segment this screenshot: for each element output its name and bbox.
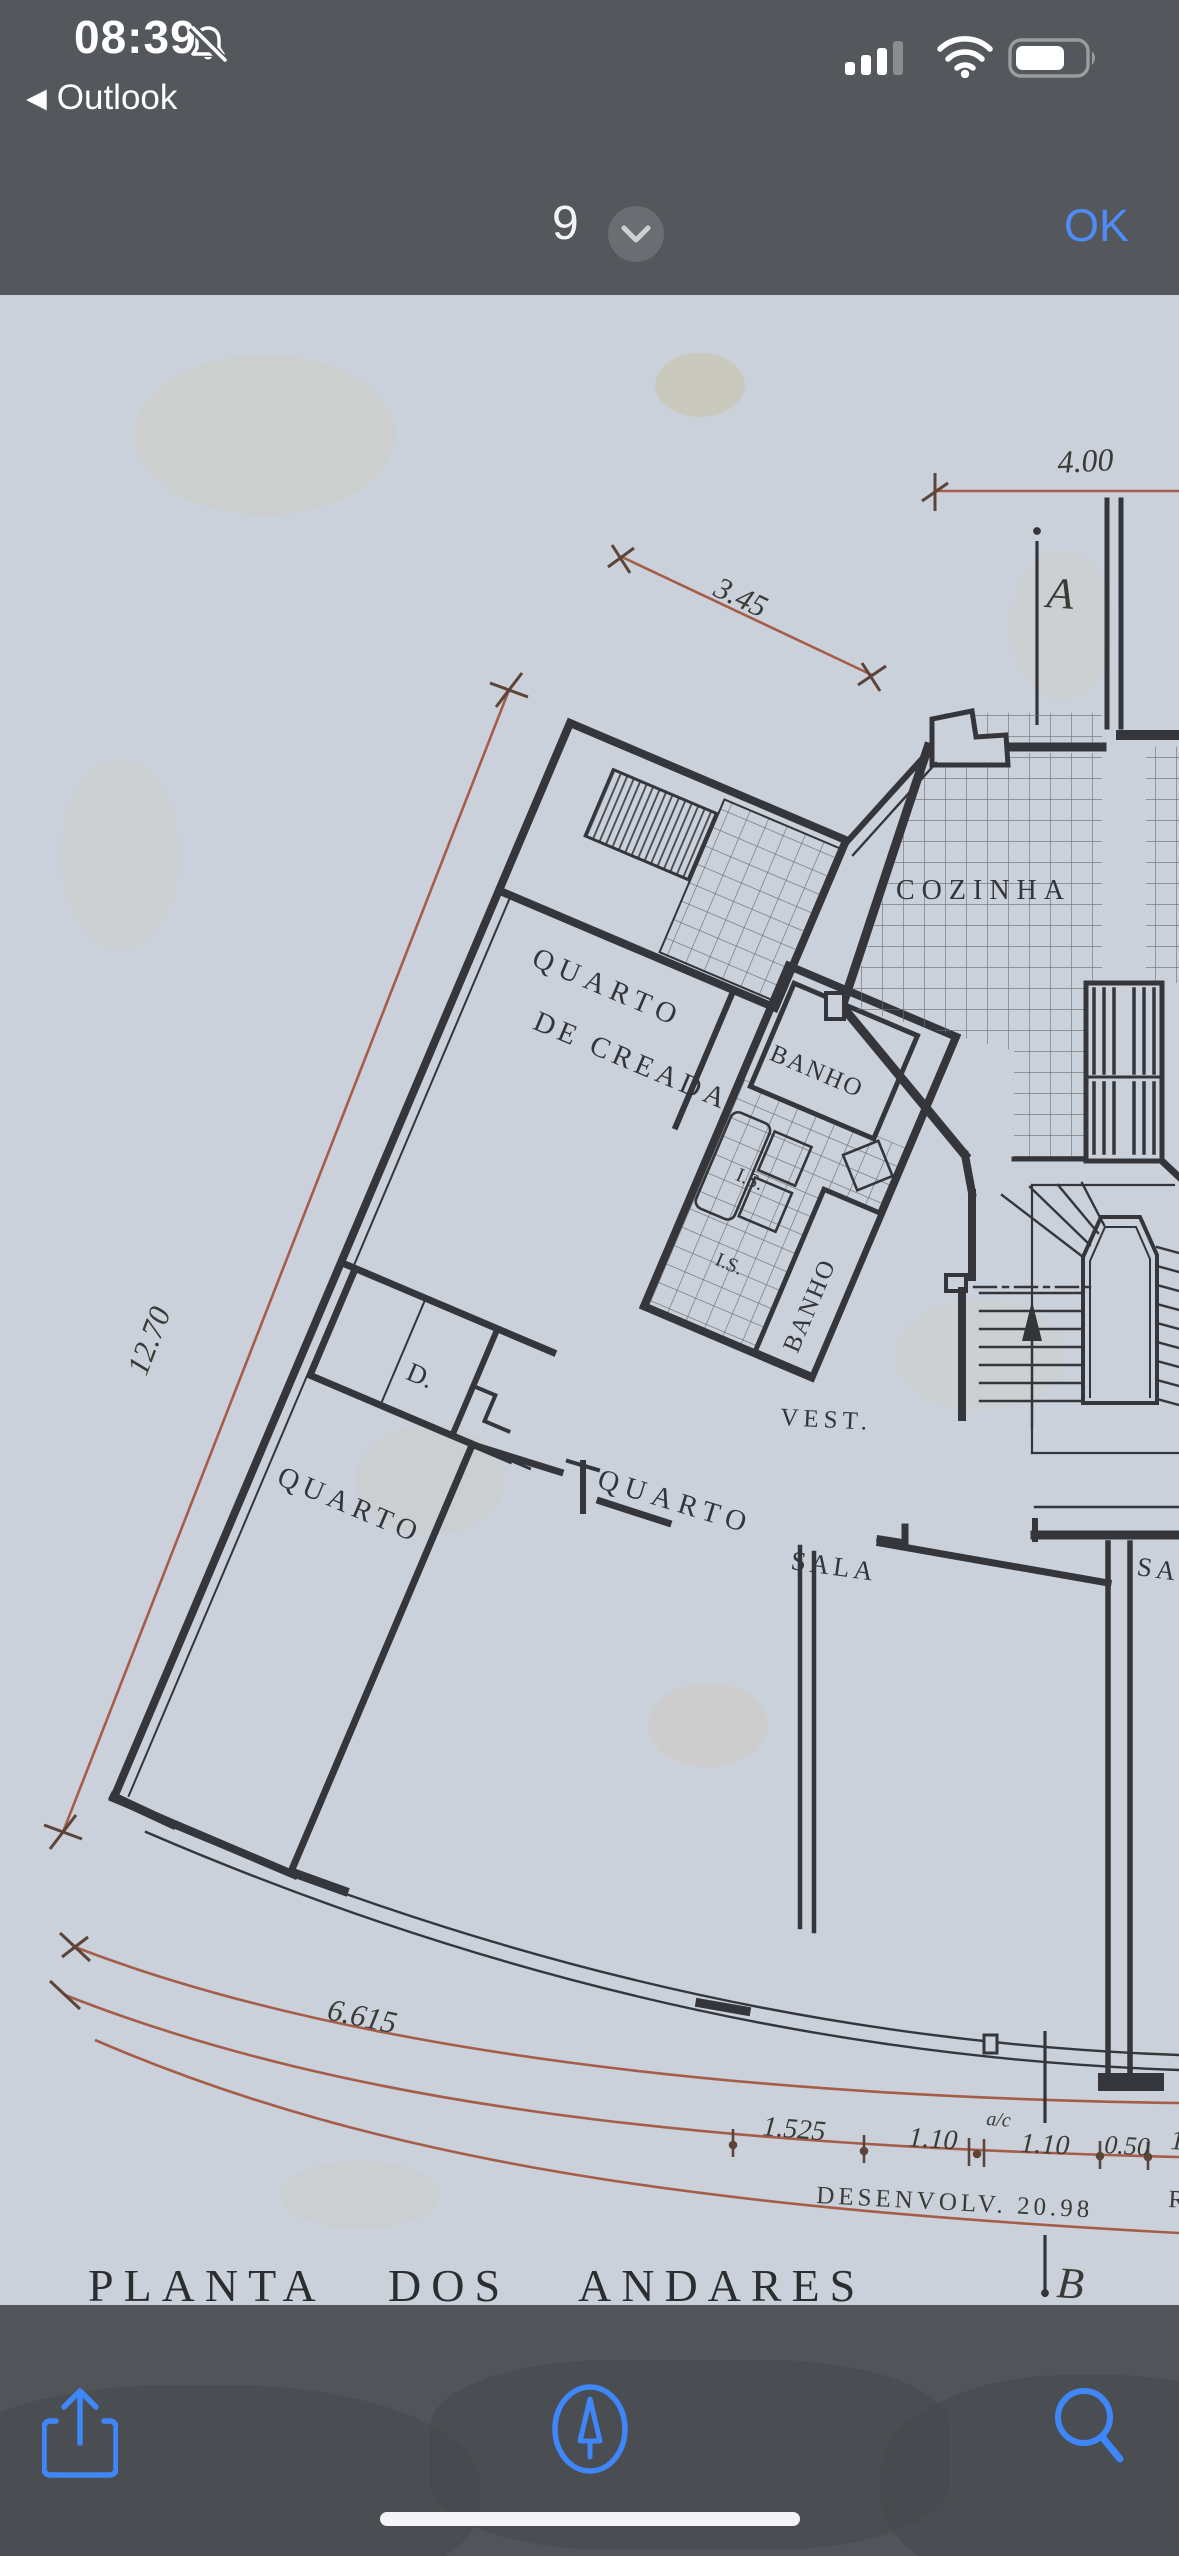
share-button[interactable]	[42, 2387, 118, 2482]
room-label-kitchen: COZINHA	[896, 875, 1071, 906]
bell-slash-icon	[186, 22, 230, 71]
markup-button[interactable]	[548, 2383, 632, 2478]
dim-development-partial: R	[1168, 2186, 1179, 2214]
iphone-screen: 08:39 ◀ Outlook	[0, 0, 1179, 2556]
page-indicator: 9	[552, 196, 579, 251]
title-word-3: ANDARES	[578, 2260, 865, 2305]
section-marker-b: B	[1055, 2258, 1085, 2305]
dim-6615: 6.615	[325, 1992, 401, 2041]
search-button[interactable]	[1052, 2387, 1126, 2470]
ok-button[interactable]: OK	[1064, 200, 1129, 252]
status-nav-bar: 08:39 ◀ Outlook	[0, 0, 1179, 295]
plan-title: PLANTA DOS ANDARES	[88, 2260, 865, 2305]
chevron-down-icon	[621, 224, 651, 244]
dim-050: 0.50	[1104, 2130, 1151, 2161]
bottom-toolbar	[0, 2305, 1179, 2556]
wifi-icon	[936, 36, 994, 83]
dim-partial: 1	[1170, 2125, 1179, 2157]
floor-plan-image[interactable]: 4.00 3.45 12.70 6.615 1.525 1.10 a/c 1.1…	[0, 295, 1179, 2305]
room-label-living: SALA	[789, 1545, 879, 1587]
cellular-signal-icon	[845, 40, 919, 81]
markup-compass-icon	[548, 2383, 632, 2475]
battery-icon	[1008, 38, 1100, 83]
back-to-outlook-button[interactable]: ◀ Outlook	[26, 78, 177, 118]
page-picker-button[interactable]	[608, 206, 664, 262]
home-indicator[interactable]	[380, 2512, 800, 2526]
section-marker-a: A	[1042, 568, 1076, 619]
clock: 08:39	[74, 10, 197, 64]
room-label-vestibule: VEST.	[780, 1404, 873, 1436]
back-chevron-icon: ◀	[26, 81, 47, 116]
room-label-bedroom-middle: QUARTO	[594, 1463, 757, 1541]
dim-1270: 12.70	[120, 1301, 178, 1379]
back-app-label: Outlook	[57, 78, 178, 118]
dim-1525: 1.525	[761, 2111, 826, 2147]
dim-110b: 1.10	[1020, 2128, 1071, 2162]
dim-345: 3.45	[708, 569, 773, 624]
share-icon	[42, 2387, 118, 2479]
title-word-2: DOS	[388, 2260, 510, 2305]
dim-top: 4.00	[1056, 441, 1114, 480]
room-label-living-partial: SA	[1135, 1551, 1179, 1587]
dim-ac-note: a/c	[986, 2108, 1012, 2132]
dim-110a: 1.10	[908, 2122, 959, 2156]
title-word-1: PLANTA	[88, 2260, 326, 2305]
search-icon	[1052, 2387, 1126, 2467]
room-label-closet: D.	[402, 1356, 438, 1394]
